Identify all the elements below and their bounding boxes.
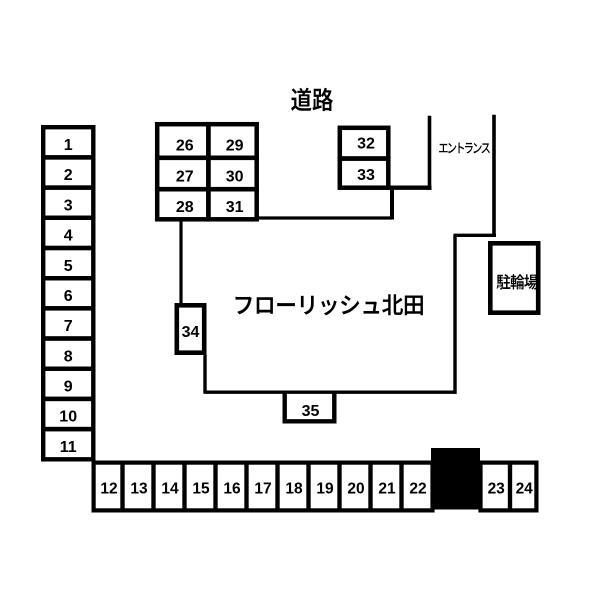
svg-text:3: 3 [64, 197, 73, 214]
svg-text:27: 27 [176, 168, 194, 185]
svg-text:4: 4 [64, 228, 73, 245]
svg-text:18: 18 [285, 480, 303, 497]
svg-text:24: 24 [516, 480, 534, 497]
svg-text:11: 11 [60, 439, 77, 456]
svg-text:1: 1 [64, 137, 73, 154]
svg-text:29: 29 [226, 138, 244, 155]
svg-text:16: 16 [223, 480, 241, 497]
svg-text:15: 15 [192, 480, 210, 497]
svg-text:12: 12 [100, 480, 117, 497]
svg-text:5: 5 [64, 258, 73, 275]
svg-text:17: 17 [254, 480, 271, 497]
svg-text:20: 20 [347, 480, 364, 497]
svg-text:7: 7 [64, 318, 73, 335]
svg-text:19: 19 [316, 480, 334, 497]
svg-text:23: 23 [488, 480, 506, 497]
svg-text:31: 31 [226, 199, 244, 216]
svg-text:33: 33 [357, 167, 375, 184]
svg-text:9: 9 [64, 379, 73, 396]
svg-text:34: 34 [182, 324, 200, 341]
svg-text:2: 2 [64, 167, 73, 184]
svg-text:13: 13 [130, 480, 148, 497]
svg-text:32: 32 [357, 135, 375, 152]
svg-text:26: 26 [176, 138, 194, 155]
svg-text:30: 30 [226, 168, 244, 185]
svg-text:6: 6 [64, 288, 73, 305]
svg-text:8: 8 [64, 348, 73, 365]
svg-text:10: 10 [59, 409, 77, 426]
svg-text:21: 21 [378, 480, 396, 497]
svg-text:35: 35 [302, 403, 320, 420]
svg-text:22: 22 [409, 480, 426, 497]
svg-text:28: 28 [176, 199, 194, 216]
svg-text:14: 14 [161, 480, 179, 497]
